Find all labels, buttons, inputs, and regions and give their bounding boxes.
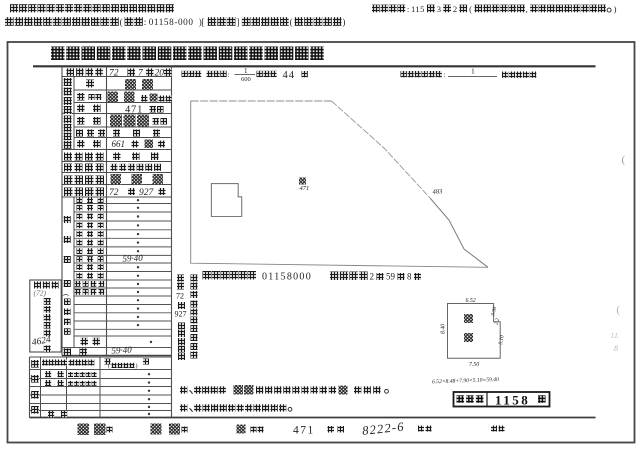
svg-text:7.50: 7.50 xyxy=(469,362,479,368)
svg-text:927: 927 xyxy=(175,310,187,319)
svg-text:8: 8 xyxy=(614,344,618,353)
svg-text:8.40: 8.40 xyxy=(440,324,447,334)
svg-text:): ) xyxy=(614,4,617,14)
svg-text:(: ( xyxy=(120,17,123,27)
svg-text:471: 471 xyxy=(293,425,315,437)
svg-text:471: 471 xyxy=(300,185,310,192)
svg-text:]: ] xyxy=(236,17,239,27)
svg-text:01158-000: 01158-000 xyxy=(149,17,194,27)
svg-text:3: 3 xyxy=(437,4,441,14)
svg-text:471: 471 xyxy=(125,105,143,116)
svg-text:1158: 1158 xyxy=(495,392,530,407)
svg-text::: : xyxy=(144,17,147,27)
svg-text:LL: LL xyxy=(610,332,619,340)
svg-text:72: 72 xyxy=(109,69,119,79)
svg-text:(: ( xyxy=(622,154,626,166)
svg-text:8: 8 xyxy=(407,272,412,282)
svg-text:115: 115 xyxy=(411,4,425,14)
svg-text:)[: )[ xyxy=(199,17,205,27)
svg-text:927: 927 xyxy=(139,188,155,198)
svg-text:(: ( xyxy=(469,4,472,14)
svg-text:(: ( xyxy=(290,17,293,27)
svg-text:,: , xyxy=(526,5,528,14)
svg-text:2: 2 xyxy=(370,272,375,282)
svg-text:72: 72 xyxy=(109,188,119,198)
svg-text::: : xyxy=(228,71,230,79)
svg-text:(: ( xyxy=(108,363,110,370)
svg-text:1: 1 xyxy=(244,67,248,75)
svg-text:59: 59 xyxy=(386,272,396,282)
svg-text:483: 483 xyxy=(432,188,443,196)
svg-text::: : xyxy=(444,71,446,79)
svg-text:44: 44 xyxy=(283,70,296,81)
svg-text:): ) xyxy=(342,17,345,27)
svg-text:20: 20 xyxy=(155,69,165,79)
svg-text:): ) xyxy=(136,363,138,370)
svg-text:600: 600 xyxy=(241,76,251,83)
svg-text::: : xyxy=(407,5,409,14)
svg-text:(72): (72) xyxy=(34,289,47,298)
svg-text:2: 2 xyxy=(453,4,457,14)
svg-text:01158000: 01158000 xyxy=(262,272,312,283)
svg-text:59·40: 59·40 xyxy=(111,345,132,356)
svg-text:59·40: 59·40 xyxy=(122,253,143,264)
svg-text:6.52: 6.52 xyxy=(466,298,476,304)
svg-text:72: 72 xyxy=(176,292,184,301)
svg-text:1: 1 xyxy=(471,67,475,76)
svg-text:661: 661 xyxy=(112,139,126,149)
